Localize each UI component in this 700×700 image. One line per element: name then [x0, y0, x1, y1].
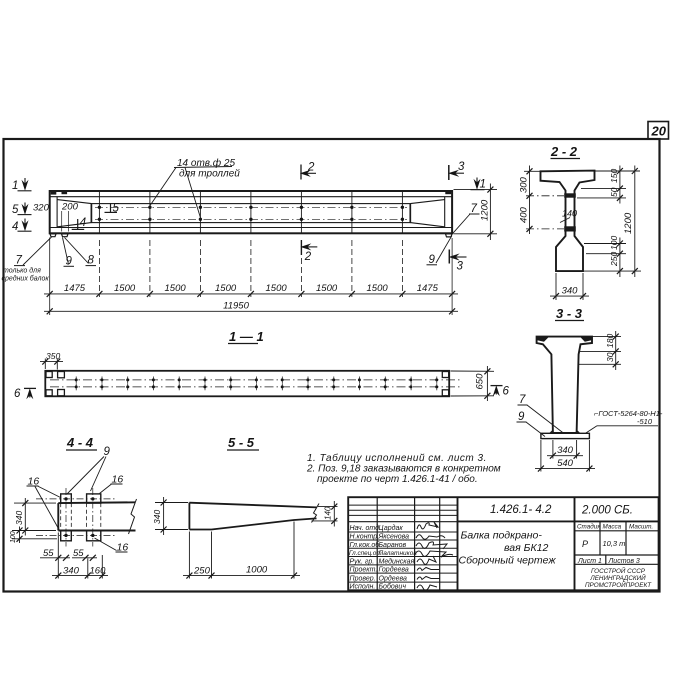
svg-text:Рук. гр.: Рук. гр. [350, 558, 375, 565]
svg-text:7: 7 [471, 203, 478, 215]
svg-text:1000: 1000 [246, 565, 268, 576]
svg-text:100: 100 [10, 531, 17, 543]
svg-text:1500: 1500 [165, 283, 187, 294]
svg-text:ПРОМСТРОЙПРОЕКТ: ПРОМСТРОЙПРОЕКТ [585, 580, 652, 589]
svg-text:150: 150 [609, 169, 619, 183]
svg-text:1200: 1200 [480, 199, 491, 221]
svg-text:250: 250 [609, 252, 619, 267]
svg-text:Гл.кок.об: Гл.кок.об [350, 541, 381, 549]
svg-text:Мединская: Мединская [379, 557, 415, 565]
svg-text:1500: 1500 [316, 283, 338, 294]
svg-text:Листов 3: Листов 3 [608, 558, 640, 565]
svg-text:340: 340 [63, 566, 80, 577]
svg-text:Лист 1: Лист 1 [577, 558, 602, 565]
svg-text:Стадия: Стадия [577, 523, 601, 531]
svg-text:только для: только для [3, 267, 41, 275]
svg-text:55: 55 [43, 548, 54, 559]
svg-text:1500: 1500 [215, 283, 237, 294]
svg-text:20: 20 [651, 124, 667, 139]
svg-text:4 - 4: 4 - 4 [66, 435, 94, 450]
svg-text:650: 650 [475, 373, 486, 390]
svg-text:300: 300 [519, 176, 530, 193]
svg-text:340: 340 [557, 445, 574, 456]
svg-text:9: 9 [104, 446, 111, 458]
svg-text:Масшт.: Масшт. [629, 524, 653, 531]
svg-text:4: 4 [80, 217, 86, 229]
svg-text:1 — 1: 1 — 1 [229, 329, 264, 344]
svg-text:140: 140 [324, 506, 333, 520]
svg-text:Баранов: Баранов [379, 542, 407, 549]
svg-text:Сборочный чертеж: Сборочный чертеж [459, 555, 557, 567]
svg-text:Н.контр.: Н.контр. [350, 534, 380, 541]
svg-text:-510: -510 [637, 417, 653, 426]
svg-text:2. Поз. 9,18 заказываются в ко: 2. Поз. 9,18 заказываются в конкретном [306, 464, 501, 475]
svg-text:5 - 5: 5 - 5 [228, 435, 255, 450]
svg-text:1500: 1500 [367, 283, 389, 294]
svg-text:200: 200 [61, 202, 79, 213]
svg-text:9: 9 [518, 411, 525, 423]
svg-text:2 - 2: 2 - 2 [550, 144, 578, 159]
svg-text:1200: 1200 [623, 212, 634, 234]
svg-text:340: 340 [14, 511, 24, 525]
svg-text:350: 350 [46, 351, 60, 361]
svg-text:340: 340 [152, 510, 162, 524]
svg-text:180: 180 [605, 334, 615, 348]
svg-text:2: 2 [307, 162, 315, 174]
svg-text:7: 7 [519, 394, 526, 406]
svg-text:1: 1 [480, 179, 486, 191]
svg-text:Ордеева: Ордеева [379, 574, 407, 582]
svg-text:50: 50 [609, 187, 619, 197]
svg-text:Р: Р [582, 539, 588, 549]
svg-text:540: 540 [557, 458, 574, 469]
svg-text:8: 8 [88, 255, 95, 267]
svg-text:средних балок: средних балок [2, 275, 50, 283]
svg-text:Нач. отд: Нач. отд [350, 524, 380, 532]
svg-text:7: 7 [16, 255, 23, 267]
svg-text:Провер.: Провер. [350, 575, 376, 582]
svg-text:3 - 3: 3 - 3 [556, 306, 583, 321]
svg-text:1475: 1475 [64, 283, 86, 294]
svg-text:ГОССТРОЙ СССР: ГОССТРОЙ СССР [591, 566, 646, 575]
svg-text:11950: 11950 [223, 301, 249, 312]
svg-text:320: 320 [33, 203, 50, 214]
svg-text:2.000 СБ.: 2.000 СБ. [581, 505, 633, 517]
svg-text:ЛЕНИНГРАДСКИЙ: ЛЕНИНГРАДСКИЙ [589, 573, 646, 582]
svg-text:⌐ГОСТ-5264-80-Н1-: ⌐ГОСТ-5264-80-Н1- [594, 409, 663, 418]
svg-text:Яксенова: Яксенова [378, 534, 410, 541]
svg-text:9: 9 [429, 254, 436, 266]
svg-text:1475: 1475 [417, 283, 439, 294]
svg-text:3: 3 [457, 261, 464, 273]
svg-text:6: 6 [14, 388, 21, 400]
svg-text:400: 400 [519, 206, 530, 223]
svg-text:1500: 1500 [266, 283, 288, 294]
svg-text:Бобович: Бобович [379, 583, 407, 591]
svg-text:Балка подкрано-: Балка подкрано- [461, 530, 543, 542]
svg-text:10,3 т: 10,3 т [603, 539, 626, 548]
svg-text:проекте по черт 1.426.1-41 /: проекте по черт 1.426.1-41 / обо. [317, 473, 478, 485]
svg-text:1. Таблицу исполнений см. лис: 1. Таблицу исполнений см. лист 3. [307, 452, 487, 464]
svg-text:160: 160 [90, 566, 107, 577]
svg-text:340: 340 [562, 286, 579, 297]
svg-text:3: 3 [458, 161, 465, 173]
svg-text:Палатников: Палатников [379, 550, 418, 557]
svg-text:Масса: Масса [603, 524, 622, 531]
svg-text:1.426.1- 4.2: 1.426.1- 4.2 [490, 504, 552, 516]
svg-text:30: 30 [605, 352, 615, 362]
svg-text:1: 1 [12, 180, 18, 192]
svg-text:5: 5 [113, 203, 120, 215]
svg-text:250: 250 [193, 566, 211, 577]
svg-text:1500: 1500 [114, 283, 136, 294]
svg-text:Исполн.: Исполн. [350, 584, 376, 591]
svg-text:Проект.: Проект. [350, 567, 378, 574]
svg-text:Цардак: Цардак [379, 524, 404, 532]
svg-text:вая БК12: вая БК12 [504, 542, 548, 554]
svg-text:140: 140 [562, 209, 577, 219]
svg-text:6: 6 [503, 386, 510, 398]
svg-text:100: 100 [609, 236, 619, 250]
svg-text:2: 2 [304, 251, 312, 263]
svg-text:4: 4 [12, 221, 18, 233]
svg-text:Гордеева: Гордеева [379, 566, 409, 574]
svg-text:Гл.спец.от: Гл.спец.от [349, 550, 382, 557]
svg-text:55: 55 [73, 548, 84, 559]
